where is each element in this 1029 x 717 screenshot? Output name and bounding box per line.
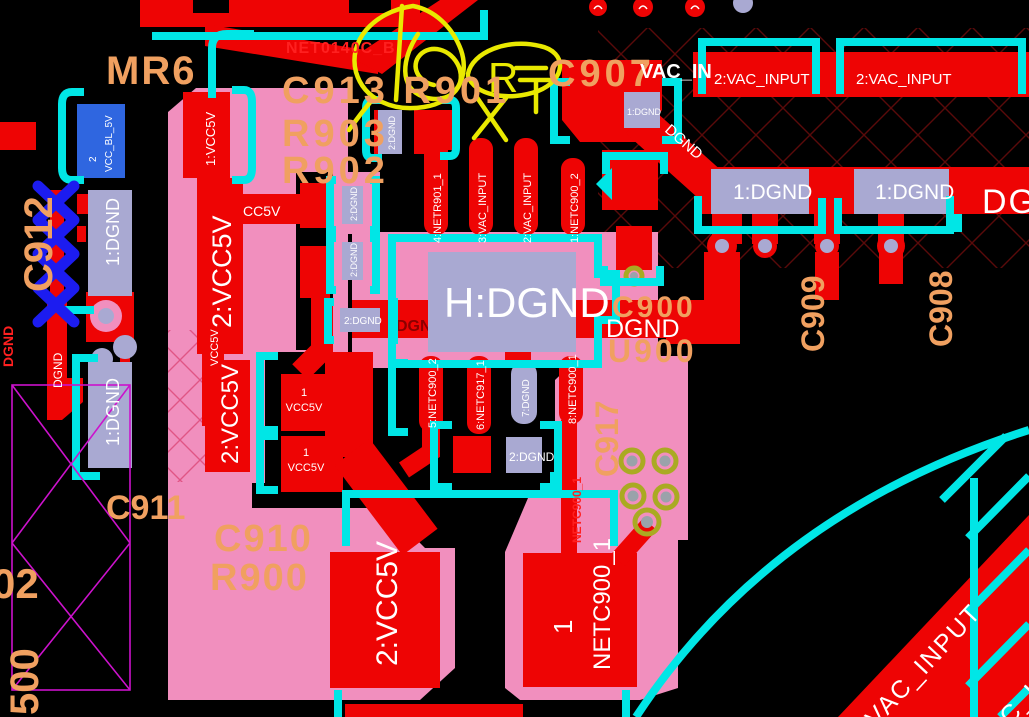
trace-label-vac2: 2:VAC_INPUT xyxy=(522,173,534,243)
trace-label-pill5: 5:NETC900_2 xyxy=(427,358,439,428)
copper-bit[interactable] xyxy=(77,194,89,214)
via-center[interactable] xyxy=(884,239,898,253)
net-label-vcc5v-a: VCC5V xyxy=(286,402,323,414)
refdes-c913-r901: C913 R901 xyxy=(282,70,510,112)
net-label-vac-input-a: 2:VAC_INPUT xyxy=(714,71,810,88)
pcb-canvas: DGND xyxy=(0,0,1029,717)
net-label-net0140: NET0140C_B xyxy=(286,40,396,57)
copper-blob-2[interactable] xyxy=(325,352,373,457)
net-label-dgnd-trace: DGND xyxy=(51,352,65,388)
pin-label-netc900-1: 1 xyxy=(548,620,578,634)
refdes-r903: R903 xyxy=(282,113,389,155)
copper-left-edge-trace[interactable] xyxy=(0,122,36,150)
trace-label-netr901: 4:NETR901_1 xyxy=(432,173,444,243)
net-label-vcc5v-b: VCC5V xyxy=(288,462,325,474)
drill-hole xyxy=(661,492,672,503)
drill-hole xyxy=(641,516,653,528)
refdes-c912: C912 xyxy=(17,196,61,292)
pad-label-hdgnd: H:DGND xyxy=(444,279,610,326)
refdes-c917: C917 xyxy=(589,401,625,478)
pad-label-1dgnd-b: 1:DGND xyxy=(875,181,954,204)
pin-label-1a: 1 xyxy=(301,387,307,399)
net-label-vcc5v-small: VCC5V xyxy=(209,329,221,366)
pad-netc900-large[interactable] xyxy=(523,553,637,687)
via-center[interactable] xyxy=(820,239,834,253)
refdes-c909: C909 xyxy=(795,276,831,353)
drill-hole xyxy=(627,456,638,467)
refdes-c910: C910 xyxy=(214,518,313,560)
net-label-2vcc5v: 2:VCC5V xyxy=(207,215,237,328)
refdes-c908: C908 xyxy=(923,271,959,348)
pad-label-1dgnd-a: 1:DGND xyxy=(733,181,812,204)
trace-label-vac3: 3:VAC_INPUT xyxy=(477,173,489,243)
pad-label-netc900: NETC900_1 xyxy=(589,538,616,670)
pad-label-2dgnd-c: 2:DGND xyxy=(349,242,359,277)
pin-label-1b: 1 xyxy=(303,447,309,459)
net-label-cc5v: CC5V xyxy=(243,203,281,219)
refdes-frag-02: 02 xyxy=(0,560,39,607)
net-label-dgnd-left-edge: DGND xyxy=(0,326,16,367)
refdes-r902: R902 xyxy=(282,150,389,192)
drill-hole xyxy=(660,456,671,467)
net-label-vac-input-b: 2:VAC_INPUT xyxy=(856,71,952,88)
trace-label-netc900-2: 1:NETC900_2 xyxy=(569,173,581,243)
refdes-r900: R900 xyxy=(210,557,309,599)
via-center[interactable] xyxy=(758,239,772,253)
bar-notch xyxy=(349,0,391,13)
trace-label-pill7: 7:DGND xyxy=(521,379,532,417)
pad-label-1dgnd-small: 1:DGND xyxy=(627,107,662,117)
bar-notch xyxy=(193,0,229,13)
net-label-vac-in: VAC_IN xyxy=(640,61,712,83)
copper-bit[interactable] xyxy=(77,226,86,242)
refdes-frag-500: 500 xyxy=(3,648,47,715)
drill-hole xyxy=(628,491,639,502)
net-label-dgnd-u900: DGND xyxy=(606,315,680,343)
refdes-c907: C907 xyxy=(548,53,655,95)
net-label-vcc-bl-5v: VCC_BL_5V xyxy=(104,115,115,172)
copper-pad[interactable] xyxy=(453,436,491,473)
pad-label-1vcc5v: 1:VCC5V xyxy=(203,111,218,166)
copper-bottom-strip[interactable] xyxy=(345,704,523,717)
pad-label-1dgnd-strip-b: 1:DGND xyxy=(103,378,123,446)
pad-label-2dgnd-e: 2:DGND xyxy=(509,450,555,464)
refdes-mr6: MR6 xyxy=(106,49,196,93)
trace-label-pill8: 8:NETC900_1 xyxy=(567,354,579,424)
pad-label-2dgnd-d: 2:DGND xyxy=(344,316,382,327)
refdes-c911: C911 xyxy=(106,489,185,527)
via-center[interactable] xyxy=(98,308,114,324)
net-label-netc900-stem: NETC900_1 xyxy=(570,477,584,543)
copper-pad[interactable] xyxy=(300,246,330,298)
net-label-dgnd-clipped: DGND xyxy=(982,183,1029,221)
pin-label-2: 2 xyxy=(88,156,99,162)
trace-label-pill6: 6:NETC917_1 xyxy=(475,360,487,430)
pcb-layout: DGND xyxy=(0,0,1029,717)
pad-label-2dgnd-a: 2:DGND xyxy=(387,115,397,150)
pad-vcc-bl-5v[interactable] xyxy=(77,104,125,178)
via-center[interactable] xyxy=(715,239,729,253)
pad-label-1dgnd-strip-a: 1:DGND xyxy=(103,198,123,266)
pad-label-2vcc5v-bottom: 2:VCC5V xyxy=(371,541,404,666)
net-label-2vcc5v-b: 2:VCC5V xyxy=(217,364,244,464)
pad-c900[interactable] xyxy=(616,226,652,270)
via-center[interactable] xyxy=(113,335,137,359)
pad-label-2dgnd-b: 2:DGND xyxy=(349,186,359,221)
